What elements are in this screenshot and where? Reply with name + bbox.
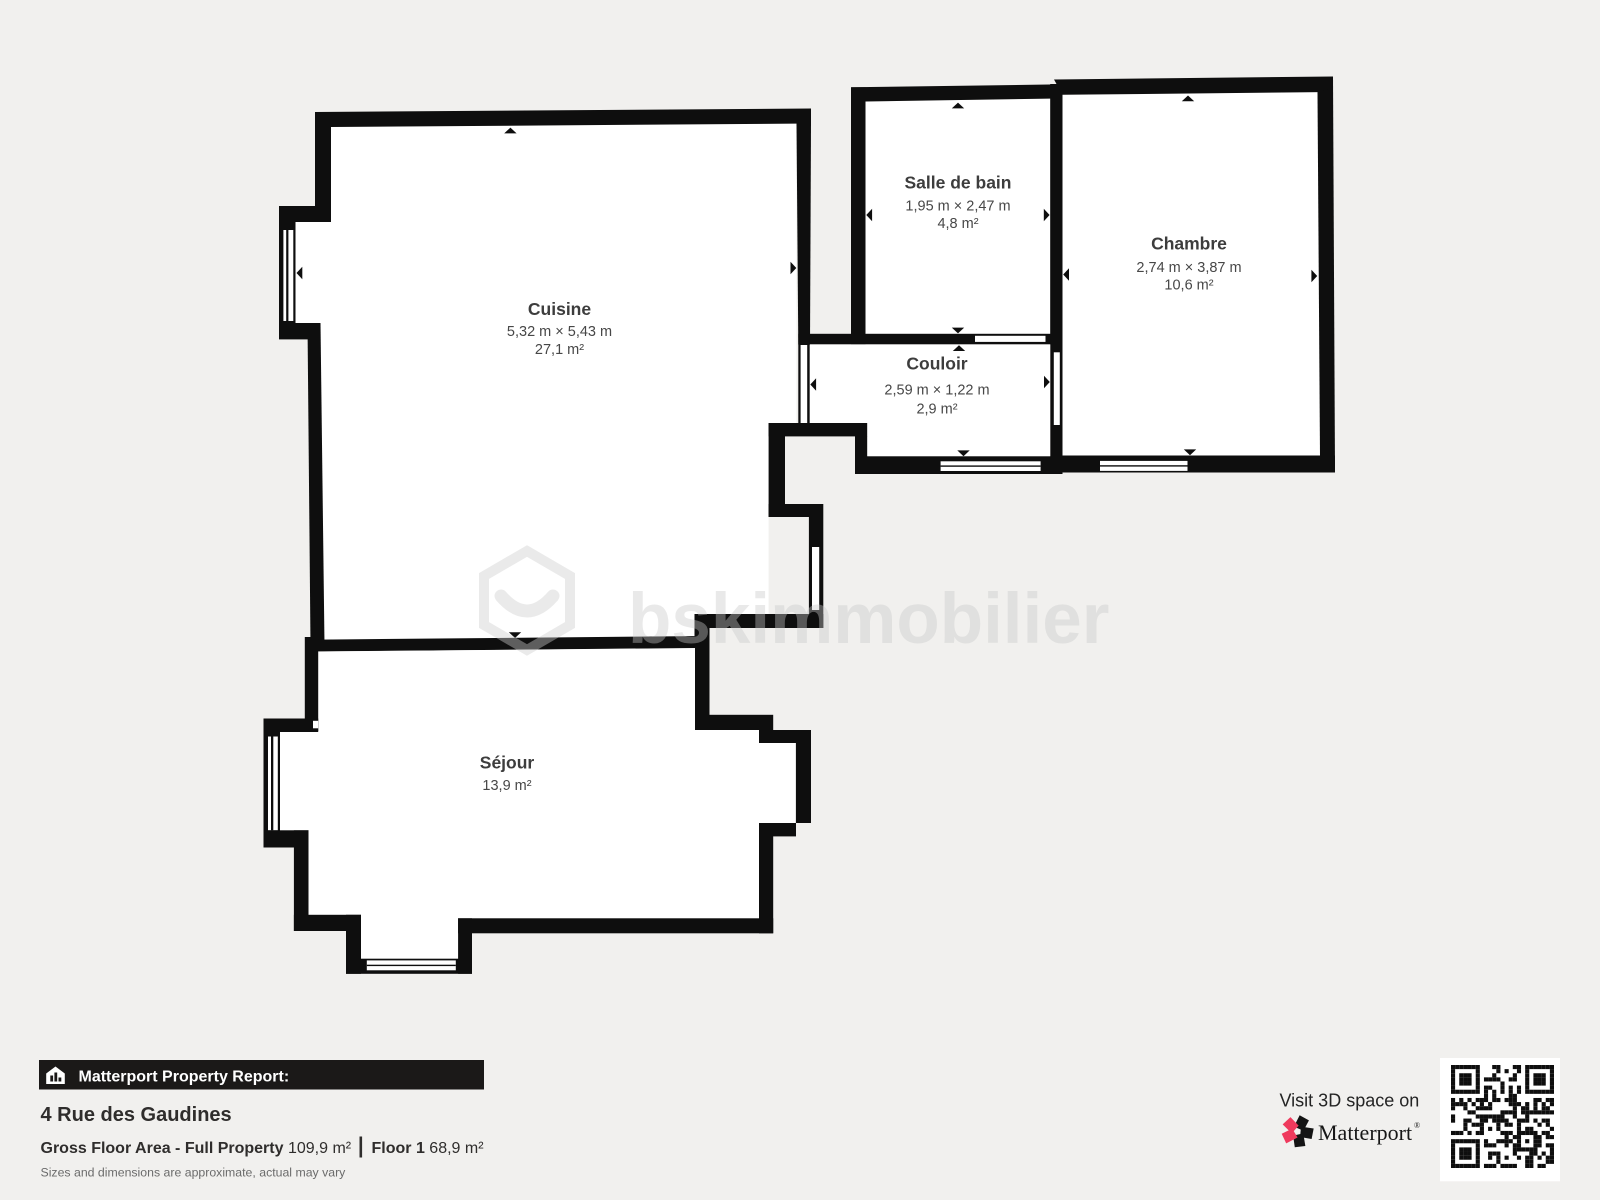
svg-text:Gross Floor Area - Full Proper: Gross Floor Area - Full Property 109,9 m… — [41, 1140, 352, 1157]
svg-text:2,59 m × 1,22 m: 2,59 m × 1,22 m — [884, 383, 989, 399]
svg-text:Sizes and dimensions are appro: Sizes and dimensions are approximate, ac… — [41, 1166, 347, 1180]
svg-text:2,74 m × 3,87 m: 2,74 m × 3,87 m — [1136, 260, 1241, 276]
svg-text:2,9 m²: 2,9 m² — [916, 402, 957, 418]
svg-text:Chambre: Chambre — [1151, 233, 1227, 253]
svg-text:5,32 m × 5,43 m: 5,32 m × 5,43 m — [507, 324, 612, 340]
svg-text:Matterport Property Report:: Matterport Property Report: — [79, 1069, 290, 1086]
svg-text:Séjour: Séjour — [480, 753, 535, 773]
svg-text:4 Rue des Gaudines: 4 Rue des Gaudines — [41, 1104, 232, 1126]
svg-text:Couloir: Couloir — [906, 354, 967, 374]
svg-text:Cuisine: Cuisine — [528, 299, 591, 319]
svg-text:Visit 3D space on: Visit 3D space on — [1280, 1091, 1420, 1111]
svg-text:1,95 m × 2,47 m: 1,95 m × 2,47 m — [905, 199, 1010, 215]
svg-text:13,9 m²: 13,9 m² — [482, 778, 531, 794]
svg-text:bskimmobilier: bskimmobilier — [628, 580, 1109, 659]
svg-text:Matterport: Matterport — [1318, 1120, 1412, 1145]
svg-text:4,8 m²: 4,8 m² — [937, 216, 978, 232]
svg-text:Salle de bain: Salle de bain — [905, 173, 1012, 193]
svg-text:10,6 m²: 10,6 m² — [1164, 277, 1213, 293]
svg-text:®: ® — [1414, 1121, 1420, 1130]
svg-text:Floor 1 68,9 m²: Floor 1 68,9 m² — [372, 1140, 485, 1157]
svg-text:27,1 m²: 27,1 m² — [535, 342, 584, 358]
